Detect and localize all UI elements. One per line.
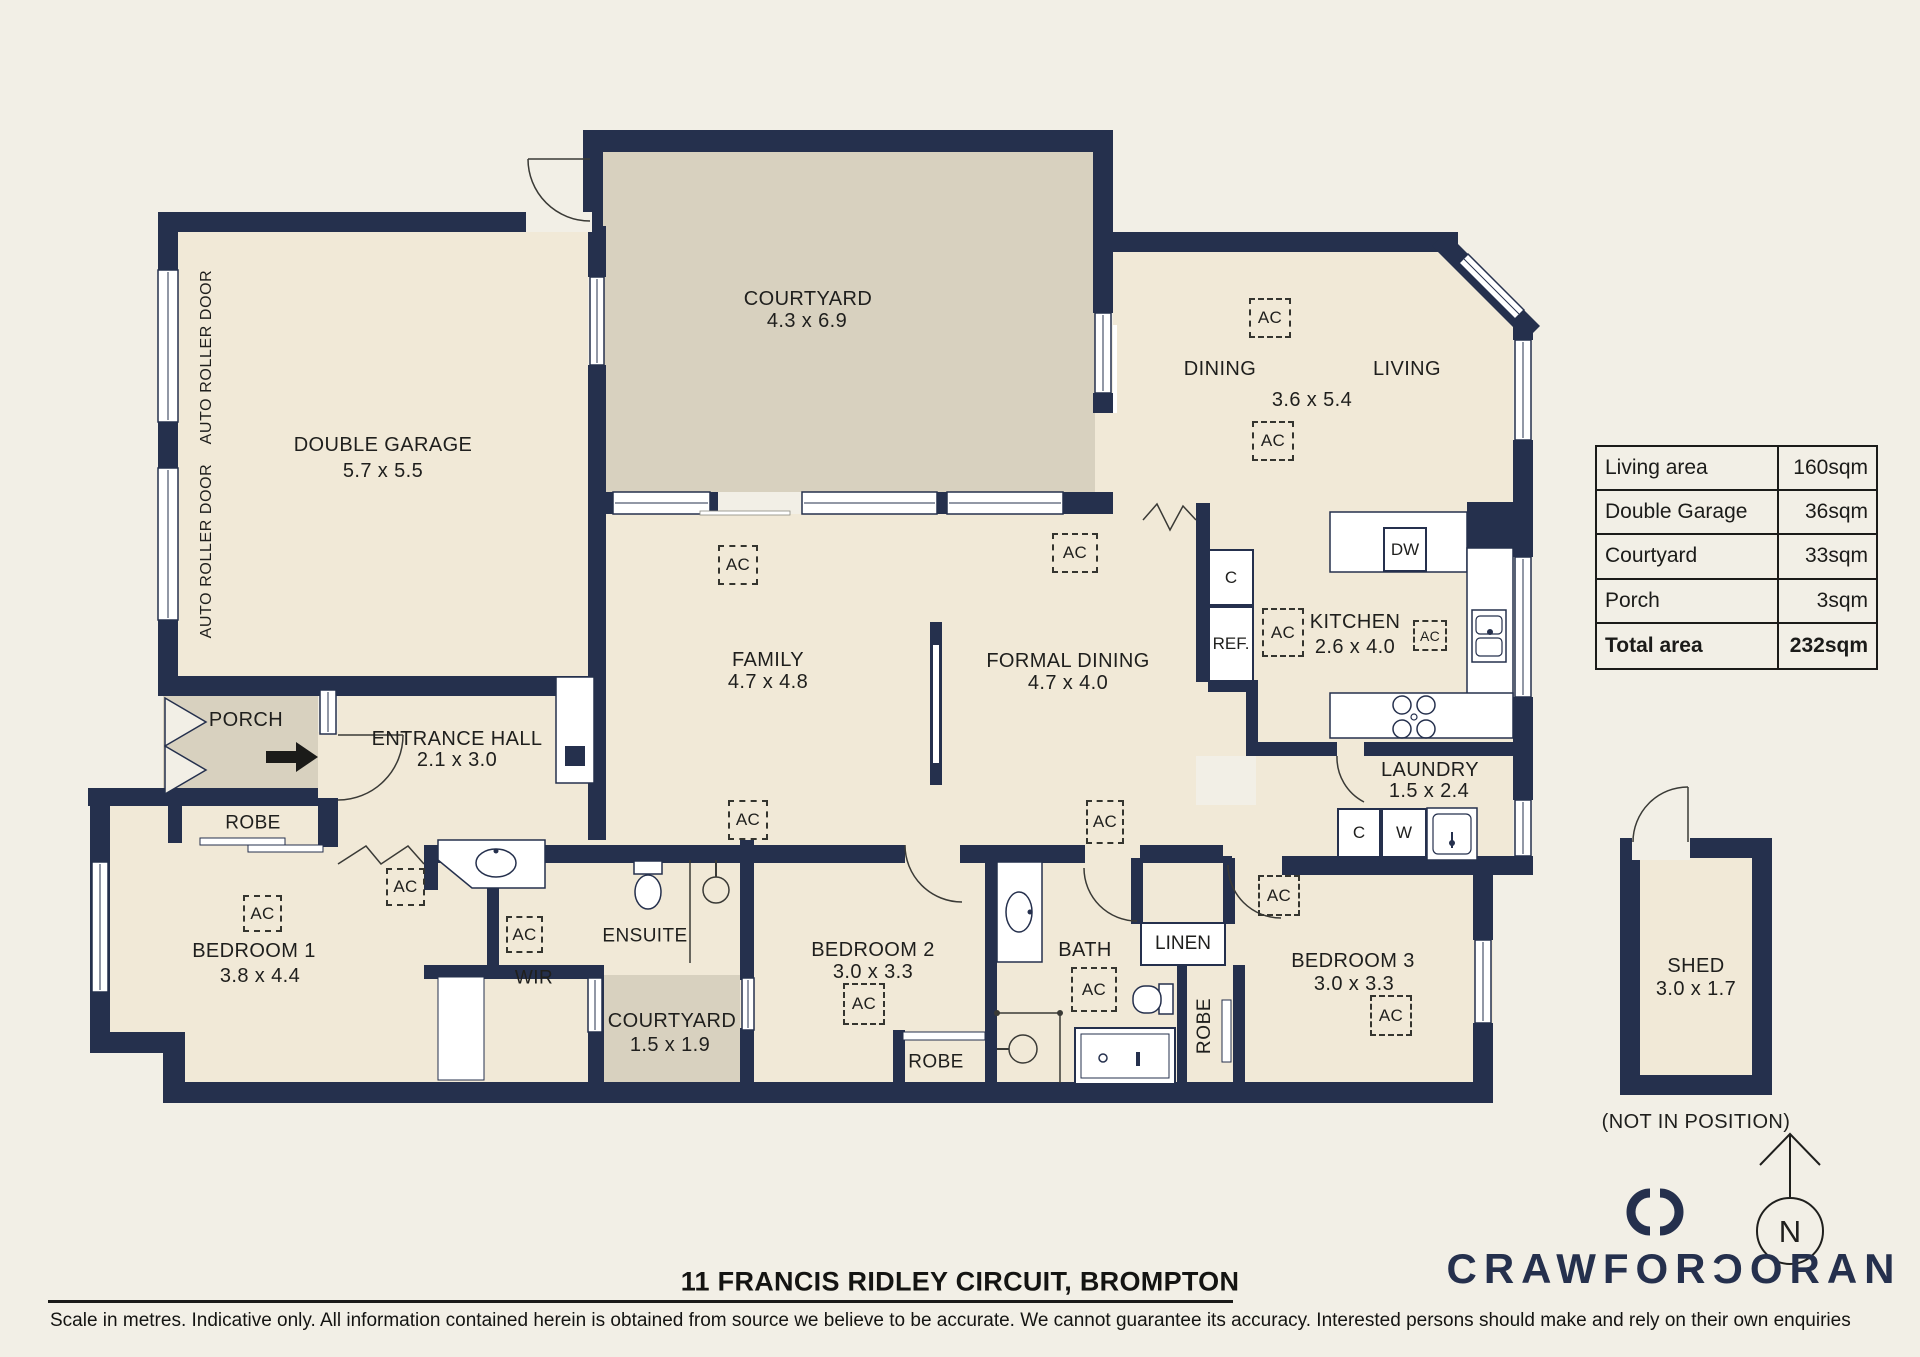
ac-unit-bedroom3-door: AC: [1258, 875, 1300, 916]
ac-unit-ensuite: AC: [506, 916, 543, 953]
ac-unit-dining-top: AC: [1249, 298, 1291, 338]
courtyard-dims: 4.3 x 6.9: [767, 310, 847, 332]
brand-wordmark: CRAWFORƆORAN: [1447, 1245, 1902, 1293]
laundry-dims: 1.5 x 2.4: [1389, 780, 1469, 802]
table-row-total: Total area 232sqm: [1597, 624, 1876, 668]
garage-dims: 5.7 x 5.5: [343, 460, 423, 482]
floorplan-page: DOUBLE GARAGE 5.7 x 5.5 AUTO ROLLER DOOR…: [0, 0, 1920, 1357]
kitchen-label: KITCHEN: [1310, 611, 1401, 633]
auto-roller-door-2-label: AUTO ROLLER DOOR: [198, 464, 216, 639]
formal-dining-dims: 4.7 x 4.0: [1028, 672, 1108, 694]
courtyard-label: COURTYARD: [744, 288, 872, 310]
bedroom2-dims: 3.0 x 3.3: [833, 961, 913, 983]
shed-label: SHED: [1667, 955, 1724, 977]
ac-unit-kitchen-left: AC: [1262, 608, 1304, 657]
table-row-label: Total area: [1597, 624, 1779, 668]
ac-unit-bath: AC: [1071, 967, 1117, 1012]
table-row: Double Garage 36sqm: [1597, 491, 1876, 535]
ac-unit-family-top: AC: [718, 545, 758, 585]
shed: [1630, 787, 1762, 1085]
table-row-value: 232sqm: [1779, 624, 1876, 668]
door-track: [700, 511, 790, 515]
ensuite-toilet: [635, 875, 661, 909]
shed-note: (NOT IN POSITION): [1602, 1111, 1791, 1133]
porch-label: PORCH: [209, 709, 283, 731]
ac-unit-dining-bottom: AC: [1252, 421, 1294, 461]
cupboard-box-laundry: C: [1337, 808, 1381, 858]
table-row-value: 33sqm: [1779, 535, 1876, 577]
garage-label: DOUBLE GARAGE: [294, 434, 473, 456]
family-label: FAMILY: [732, 649, 804, 671]
north-letter: N: [1779, 1214, 1801, 1250]
auto-roller-door-1-label: AUTO ROLLER DOOR: [198, 270, 216, 445]
dining-living-floor: [1113, 252, 1513, 514]
robe-bedroom2-label: ROBE: [908, 1053, 963, 1074]
table-row-value: 36sqm: [1779, 491, 1876, 533]
table-row-label: Porch: [1597, 580, 1779, 622]
table-row-label: Courtyard: [1597, 535, 1779, 577]
robe-bedroom1-label: ROBE: [225, 814, 280, 835]
dishwasher-box: DW: [1383, 527, 1427, 572]
ac-unit-bedroom1-door: AC: [386, 868, 425, 906]
table-row-value: 3sqm: [1779, 580, 1876, 622]
wir-closet: [438, 977, 484, 1080]
laundry-label: LAUNDRY: [1381, 759, 1479, 781]
ac-unit-formal-bottom: AC: [1086, 800, 1124, 844]
ac-unit-bedroom1: AC: [243, 895, 282, 932]
ac-unit-bedroom3: AC: [1370, 995, 1412, 1036]
kitchen-dims: 2.6 x 4.0: [1315, 636, 1395, 658]
dining-label: DINING: [1184, 358, 1256, 380]
ac-unit-family-bottom: AC: [728, 800, 768, 840]
bedroom1-label: BEDROOM 1: [192, 940, 316, 962]
brand-logo-icon: [1631, 1193, 1679, 1231]
bedroom2-label: BEDROOM 2: [811, 939, 935, 961]
entrance-hall-label: ENTRANCE HALL: [372, 728, 543, 750]
bath-toilet: [1133, 986, 1161, 1013]
table-row-label: Double Garage: [1597, 491, 1779, 533]
ac-unit-formal-top: AC: [1052, 533, 1098, 573]
wir-label: WIR: [515, 969, 553, 990]
table-row: Courtyard 33sqm: [1597, 535, 1876, 579]
table-row-label: Living area: [1597, 447, 1779, 489]
living-label: LIVING: [1373, 358, 1441, 380]
refrigerator-box: REF.: [1208, 606, 1254, 682]
area-table: Living area 160sqm Double Garage 36sqm C…: [1595, 445, 1878, 670]
window-sill: [1113, 325, 1117, 413]
small-courtyard-dims: 1.5 x 1.9: [630, 1034, 710, 1056]
ac-unit-bedroom2: AC: [843, 983, 885, 1025]
ensuite-label: ENSUITE: [602, 927, 687, 948]
cupboard-box-kitchen: C: [1208, 549, 1254, 606]
family-dims: 4.7 x 4.8: [728, 671, 808, 693]
courtyard-floor: [603, 152, 1095, 492]
table-row: Porch 3sqm: [1597, 580, 1876, 624]
floorplan-drawing: [0, 0, 1920, 1357]
entrance-hall-dims: 2.1 x 3.0: [417, 749, 497, 771]
bedroom3-label: BEDROOM 3: [1291, 950, 1415, 972]
bedroom1-dims: 3.8 x 4.4: [220, 965, 300, 987]
formal-dining-label: FORMAL DINING: [986, 650, 1149, 672]
robe-bedroom3-label: ROBE: [1194, 998, 1216, 1054]
garage-side-door-arc: [528, 159, 590, 221]
pocket-door: [933, 645, 939, 763]
table-row-value: 160sqm: [1779, 447, 1876, 489]
footer-divider: [48, 1300, 1233, 1303]
linen-box: LINEN: [1140, 922, 1226, 966]
bedroom3-dims: 3.0 x 3.3: [1314, 973, 1394, 995]
page-title: 11 FRANCIS RIDLEY CIRCUIT, BROMPTON: [681, 1267, 1240, 1298]
disclaimer-text: Scale in metres. Indicative only. All in…: [50, 1310, 1851, 1332]
shed-dims: 3.0 x 1.7: [1656, 978, 1736, 1000]
kitchen-bench-bottom: [1330, 693, 1513, 738]
dining-living-dims: 3.6 x 5.4: [1272, 389, 1352, 411]
washer-box: W: [1381, 808, 1427, 858]
small-courtyard-label: COURTYARD: [608, 1010, 736, 1032]
bath-label: BATH: [1058, 939, 1111, 961]
ac-unit-kitchen-right: AC: [1413, 620, 1447, 651]
table-row: Living area 160sqm: [1597, 447, 1876, 491]
